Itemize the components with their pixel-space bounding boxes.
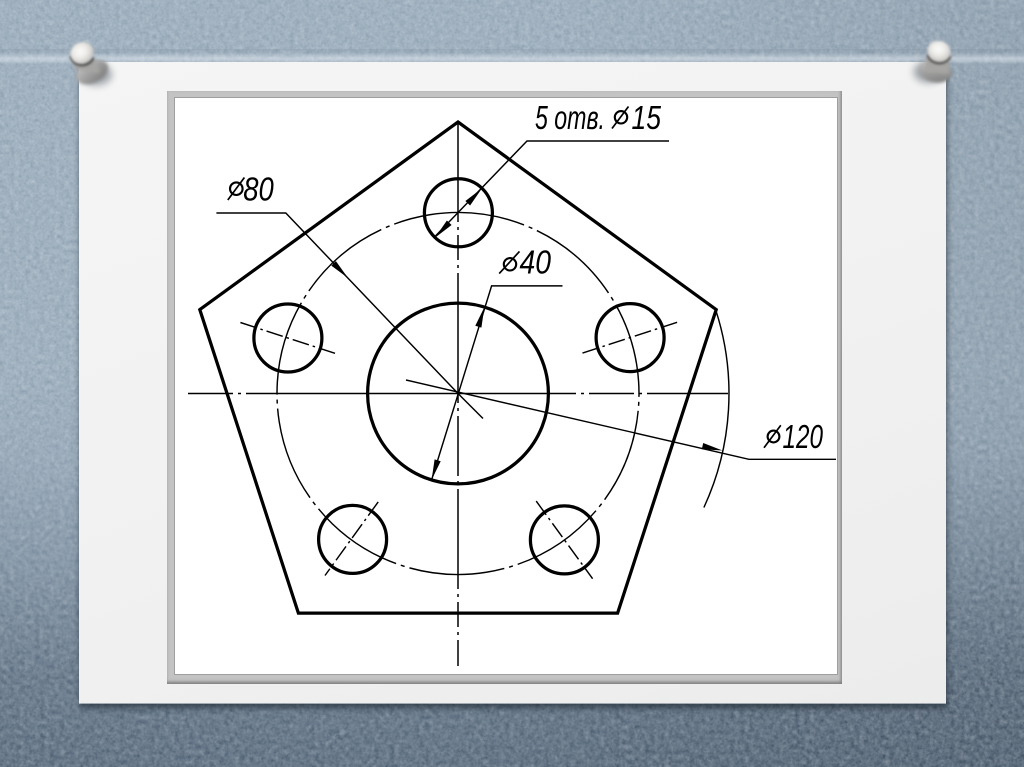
svg-text:120: 120 [783, 420, 823, 456]
svg-text:80: 80 [243, 172, 274, 208]
svg-text:15: 15 [632, 100, 662, 136]
svg-text:5 отв.: 5 отв. [535, 100, 605, 137]
svg-text:40: 40 [520, 243, 551, 281]
